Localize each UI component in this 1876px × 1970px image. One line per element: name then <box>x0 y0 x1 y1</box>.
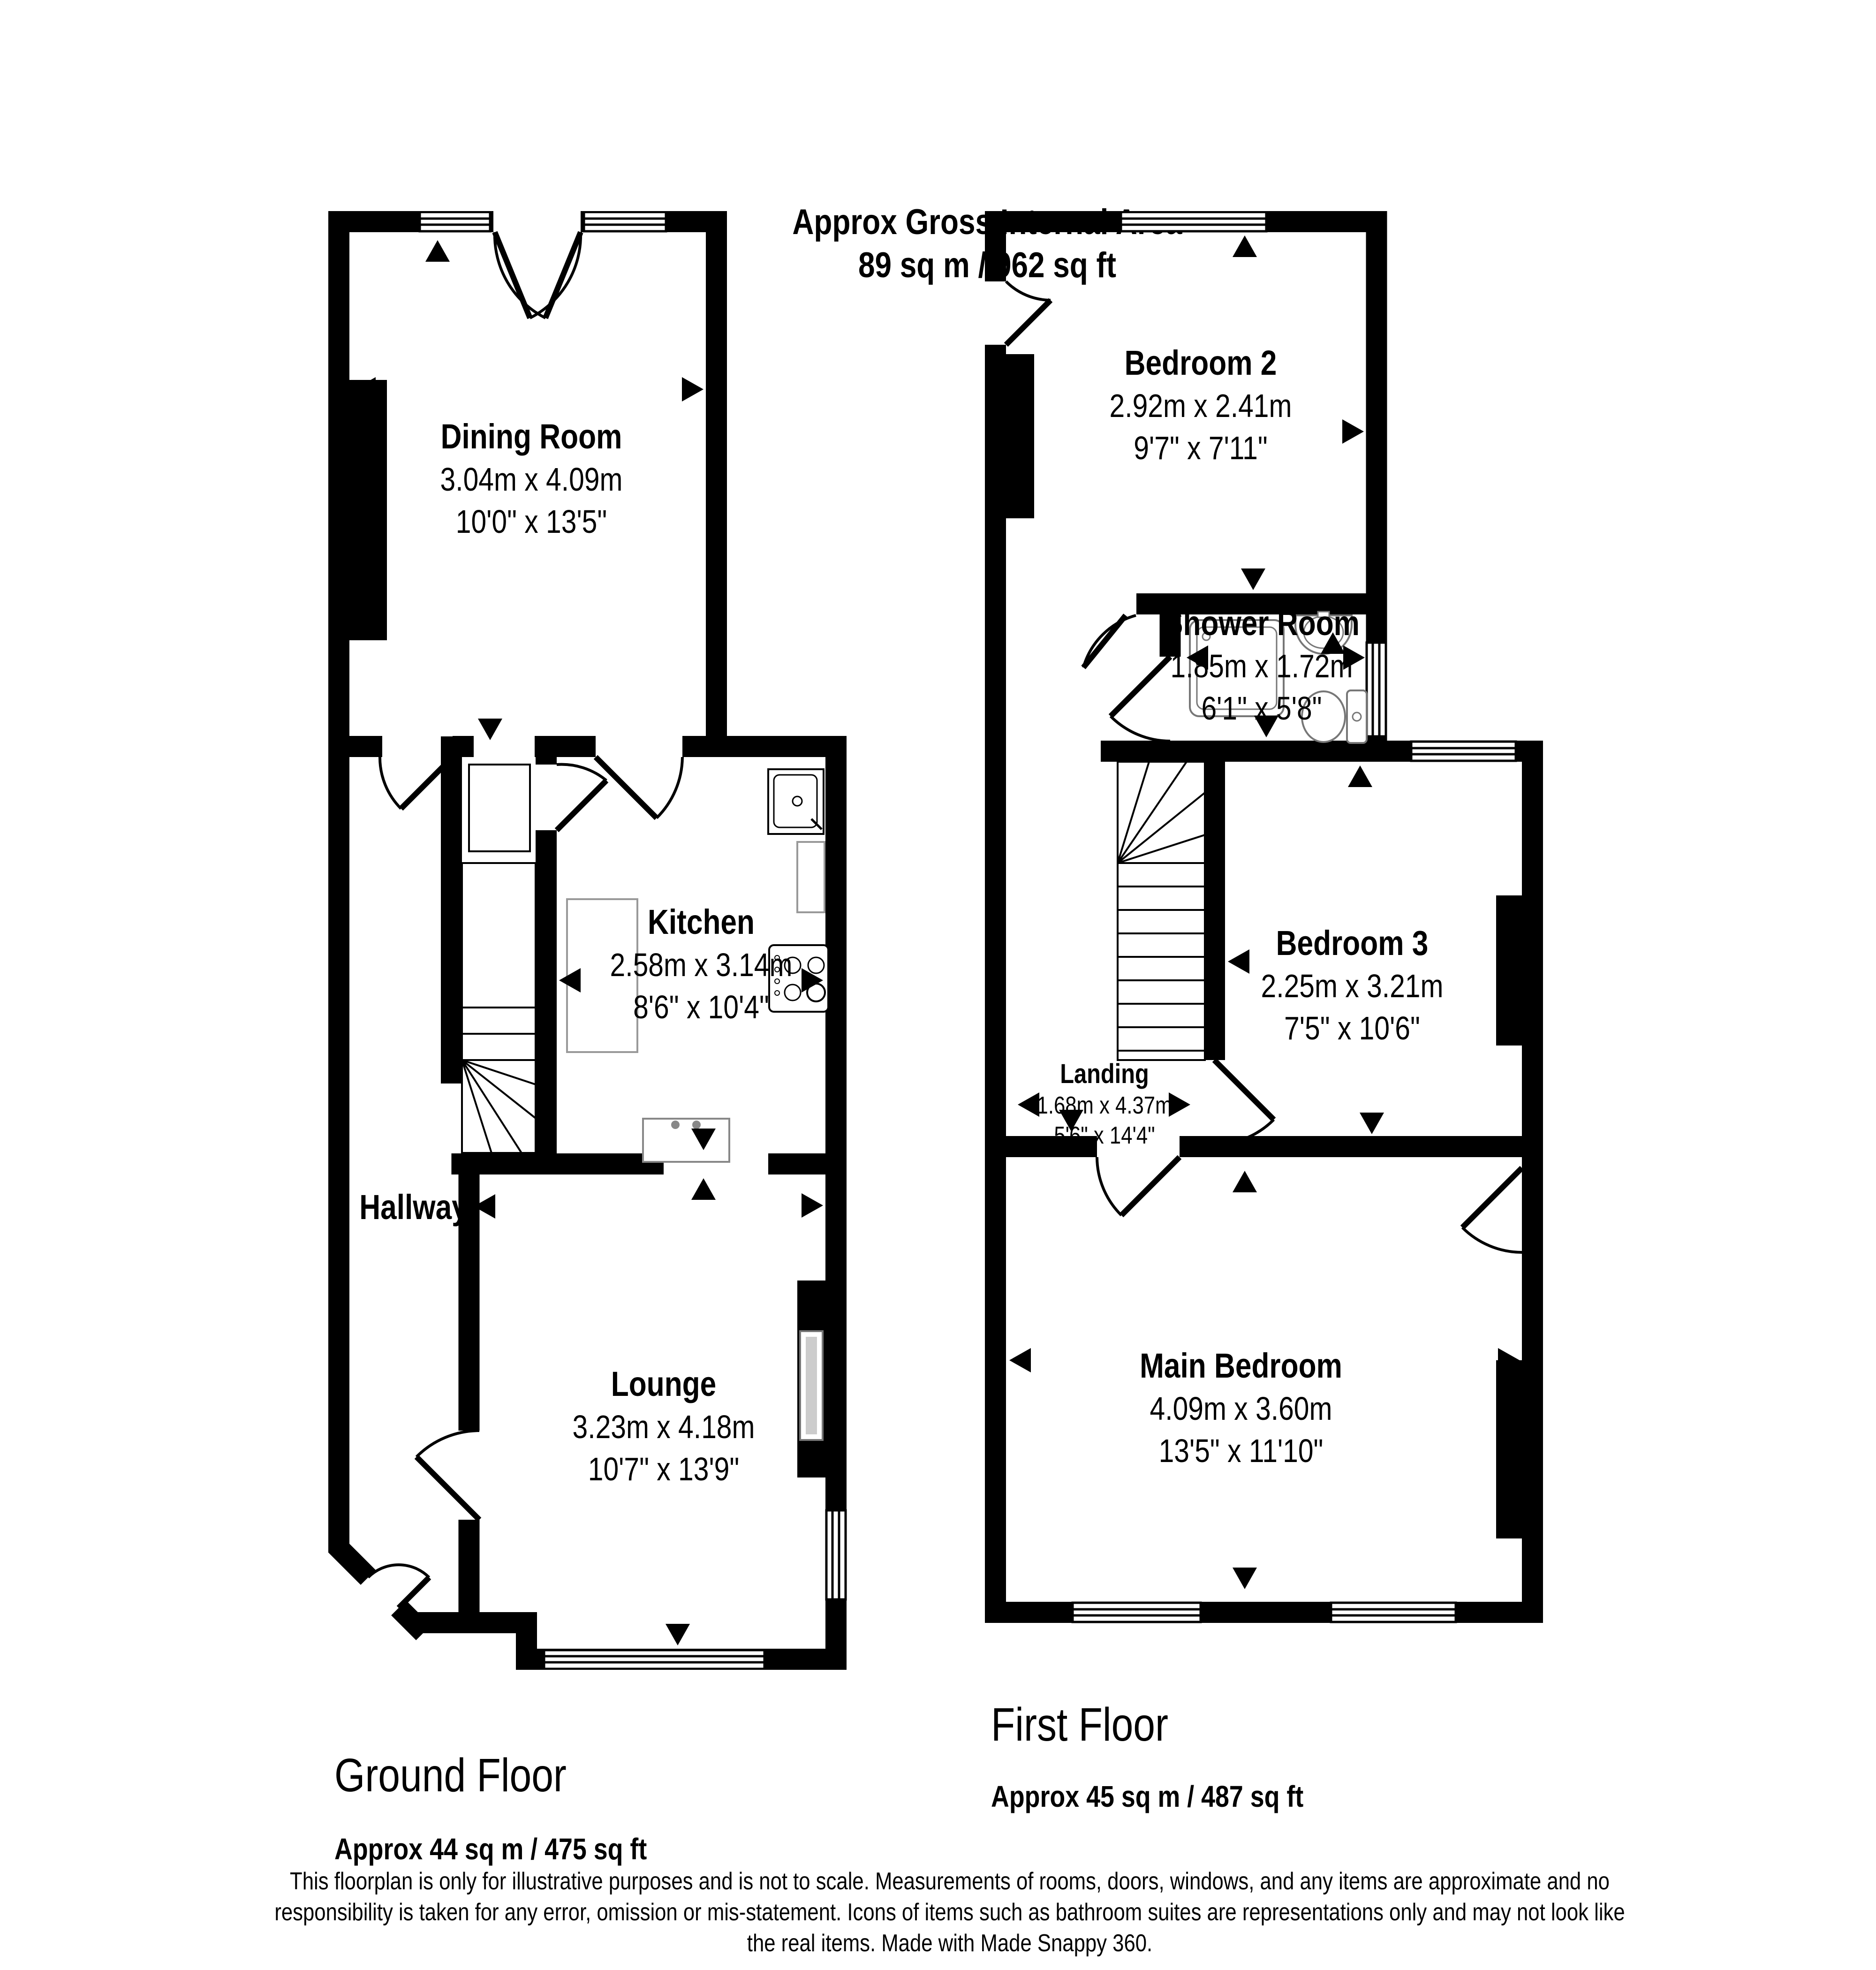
room-imperial: 5'6" x 14'4" <box>967 1121 1242 1151</box>
ground-floor-title-text: Ground Floor <box>334 1750 567 1801</box>
shower-room-label: Shower Room 1.85m x 1.72m 6'1" x 5'8" <box>1097 602 1426 729</box>
floorplan-page: Approx Gross Internal Area 89 sq m / 962… <box>0 0 1876 1970</box>
gf-stairs <box>462 765 536 1153</box>
room-name: Bedroom 3 <box>1214 922 1490 965</box>
room-name: Lounge <box>526 1363 802 1406</box>
main-bedroom-window-left <box>1073 1603 1201 1622</box>
hallway-label: Hallway <box>250 1186 578 1229</box>
room-imperial: 7'5" x 10'6" <box>1214 1007 1490 1049</box>
main-bedroom-window-right <box>1331 1603 1456 1622</box>
room-imperial: 6'1" x 5'8" <box>1124 687 1399 729</box>
bedroom3-label: Bedroom 3 2.25m x 3.21m 7'5" x 10'6" <box>1188 922 1516 1049</box>
front-door <box>368 1565 429 1608</box>
disclaimer-text: This floorplan is only for illustrative … <box>270 1866 1629 1959</box>
lounge-label: Lounge 3.23m x 4.18m 10'7" x 13'9" <box>499 1363 828 1490</box>
lounge-door <box>416 1431 479 1520</box>
first-floor-area-text: Approx 45 sq m / 487 sq ft <box>991 1778 1303 1815</box>
room-name: Shower Room <box>1124 602 1399 645</box>
ground-floor-plan: Dining Room 3.04m x 4.09m 10'0" x 13'5" … <box>328 211 882 1670</box>
room-metric: 2.25m x 3.21m <box>1214 965 1490 1007</box>
lounge-bay-window <box>544 1650 764 1669</box>
cupboard-door <box>557 765 606 830</box>
landing-label: Landing 1.68m x 4.37m 5'6" x 14'4" <box>940 1058 1269 1151</box>
bedroom3-window <box>1411 742 1516 761</box>
kitchen-appliance-icon <box>643 1119 729 1162</box>
bedroom2-window <box>1121 212 1266 231</box>
bedroom2-label: Bedroom 2 2.92m x 2.41m 9'7" x 7'11" <box>1036 341 1365 469</box>
room-imperial: 9'7" x 7'11" <box>1063 427 1339 469</box>
room-name: Hallway <box>276 1186 552 1229</box>
main-bedroom-label: Main Bedroom 4.09m x 3.60m 13'5" x 11'10… <box>1077 1344 1405 1472</box>
dining-window-left <box>420 212 490 231</box>
disclaimer: This floorplan is only for illustrative … <box>141 1866 1759 1959</box>
room-metric: 3.23m x 4.18m <box>526 1406 802 1448</box>
dining-french-doors <box>493 211 581 318</box>
room-metric: 2.92m x 2.41m <box>1063 385 1339 427</box>
room-name: Landing <box>967 1058 1242 1091</box>
dining-room-label: Dining Room 3.04m x 4.09m 10'0" x 13'5" <box>367 415 696 543</box>
main-bedroom-wardrobe-door <box>1462 1168 1522 1252</box>
first-floor-title-text: First Floor <box>991 1699 1168 1750</box>
room-metric: 1.85m x 1.72m <box>1124 645 1399 687</box>
room-imperial: 8'6" x 10'4" <box>563 986 839 1028</box>
kitchen-door <box>596 757 682 818</box>
room-name: Dining Room <box>393 415 669 458</box>
room-metric: 3.04m x 4.09m <box>393 458 669 500</box>
first-floor-title: First Floor <box>991 1699 1202 1750</box>
kitchen-label: Kitchen 2.58m x 3.14m 8'6" x 10'4" <box>537 901 865 1028</box>
main-bedroom-door <box>1097 1157 1180 1215</box>
room-name: Bedroom 2 <box>1063 341 1339 385</box>
first-floor-area: Approx 45 sq m / 487 sq ft <box>991 1778 1363 1815</box>
room-imperial: 10'0" x 13'5" <box>393 500 669 543</box>
room-imperial: 13'5" x 11'10" <box>1103 1430 1379 1472</box>
room-name: Main Bedroom <box>1103 1344 1379 1387</box>
room-metric: 1.68m x 4.37m <box>967 1091 1242 1121</box>
lounge-side-window <box>826 1510 846 1599</box>
room-imperial: 10'7" x 13'9" <box>526 1448 802 1490</box>
dining-window-right <box>584 212 666 231</box>
bedroom2-door <box>1006 281 1051 345</box>
room-metric: 4.09m x 3.60m <box>1103 1387 1379 1430</box>
kitchen-sink-icon <box>768 769 824 834</box>
room-name: Kitchen <box>563 901 839 944</box>
ground-floor-area-text: Approx 44 sq m / 475 sq ft <box>334 1830 647 1868</box>
ground-floor-title: Ground Floor <box>334 1750 611 1801</box>
ground-floor-area: Approx 44 sq m / 475 sq ft <box>334 1830 706 1868</box>
first-floor-plan: Bedroom 2 2.92m x 2.41m 9'7" x 7'11" Sho… <box>985 211 1552 1628</box>
room-metric: 2.58m x 3.14m <box>563 944 839 986</box>
